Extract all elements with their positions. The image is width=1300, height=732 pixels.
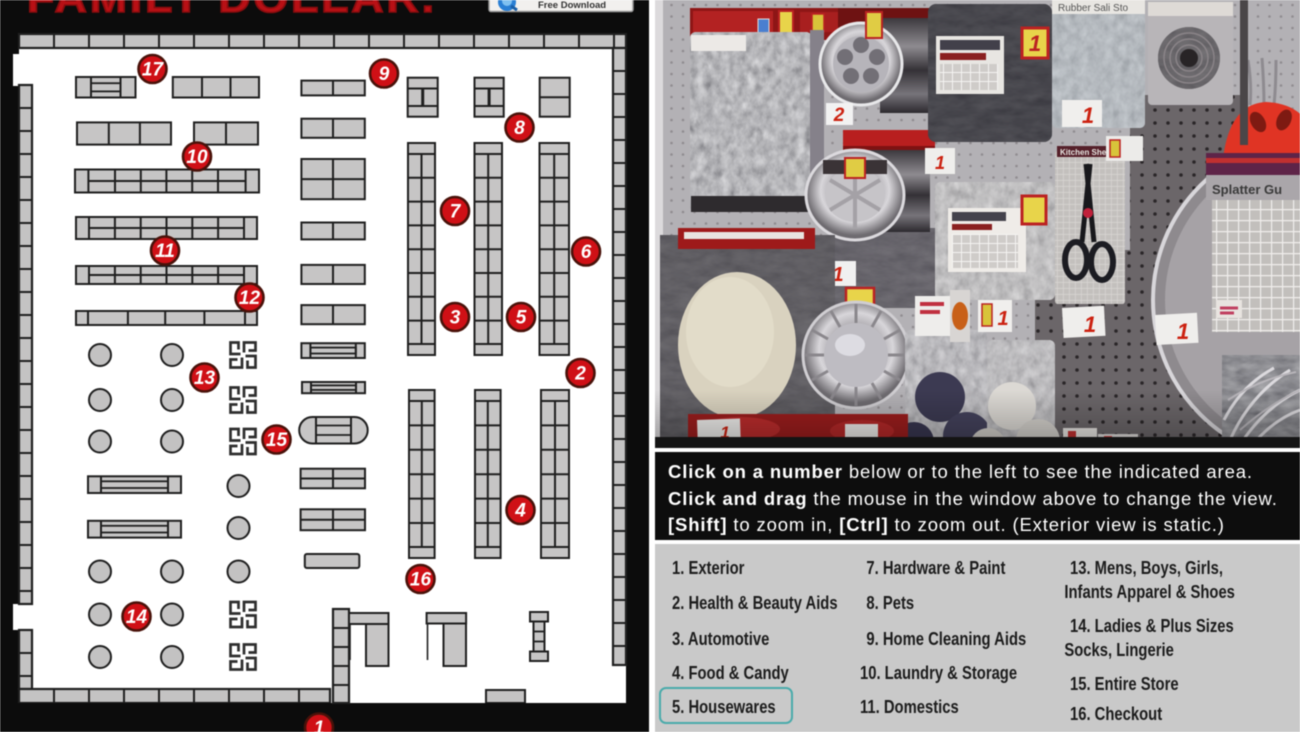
svg-text:1: 1 [1177, 319, 1189, 344]
svg-text:2: 2 [833, 105, 845, 126]
svg-text:1: 1 [935, 153, 945, 173]
svg-text:1: 1 [997, 308, 1008, 330]
svg-text:11: 11 [155, 241, 175, 262]
svg-text:13: 13 [194, 368, 216, 389]
svg-text:Rubber Sali Sto: Rubber Sali Sto [1058, 3, 1128, 14]
svg-text:4: 4 [514, 501, 526, 522]
svg-text:17: 17 [142, 60, 165, 81]
svg-text:5: 5 [516, 308, 527, 329]
svg-text:FAMILY DOLLAR.: FAMILY DOLLAR. [27, 0, 437, 20]
svg-text:1: 1 [314, 718, 325, 732]
svg-text:1: 1 [1082, 103, 1094, 128]
svg-text:Free Download: Free Download [538, 0, 606, 11]
svg-text:3: 3 [450, 308, 461, 329]
svg-text:7: 7 [450, 202, 462, 223]
svg-text:2: 2 [574, 364, 586, 385]
svg-text:1: 1 [1084, 312, 1096, 337]
svg-text:15: 15 [266, 430, 288, 451]
svg-text:14: 14 [126, 607, 148, 628]
svg-text:Splatter Gu: Splatter Gu [1212, 182, 1282, 197]
svg-text:6: 6 [581, 242, 592, 263]
svg-text:8: 8 [514, 118, 525, 139]
svg-text:9: 9 [379, 64, 390, 85]
svg-text:12: 12 [239, 288, 261, 309]
svg-text:16: 16 [410, 570, 432, 591]
svg-text:1: 1 [1029, 31, 1041, 56]
svg-text:10: 10 [186, 147, 208, 168]
